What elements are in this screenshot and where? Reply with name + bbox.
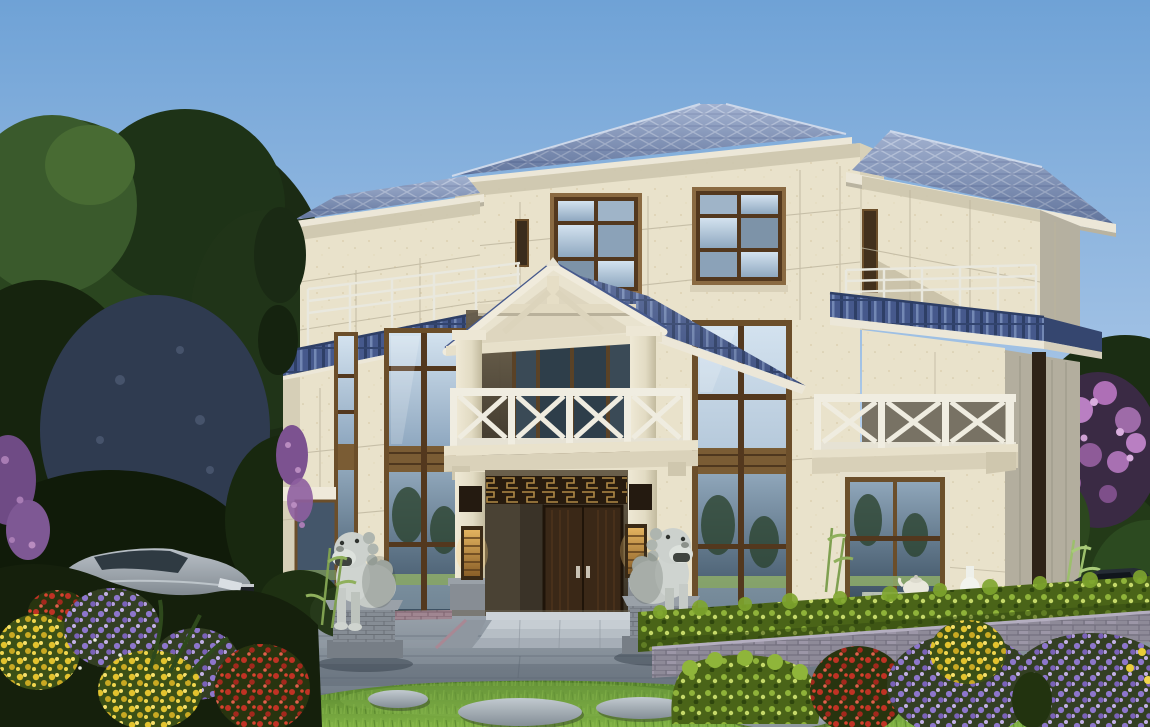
entrance	[485, 470, 628, 620]
slit-window-3f	[516, 220, 528, 266]
right-wing-side-upper	[1040, 210, 1080, 334]
door-handle-left	[576, 566, 580, 578]
lantern-left	[464, 530, 480, 576]
scene-canvas	[0, 0, 1150, 727]
window-3f-right-pair	[690, 187, 788, 292]
yellow-flower-cluster	[930, 620, 1006, 684]
door-handle-right	[586, 566, 590, 578]
lion-shadow-left	[317, 656, 413, 672]
lamp-box-left	[459, 486, 482, 512]
villa-render	[0, 0, 1150, 727]
lamp-box-right	[629, 484, 652, 510]
side-recess-slot	[1032, 352, 1046, 614]
